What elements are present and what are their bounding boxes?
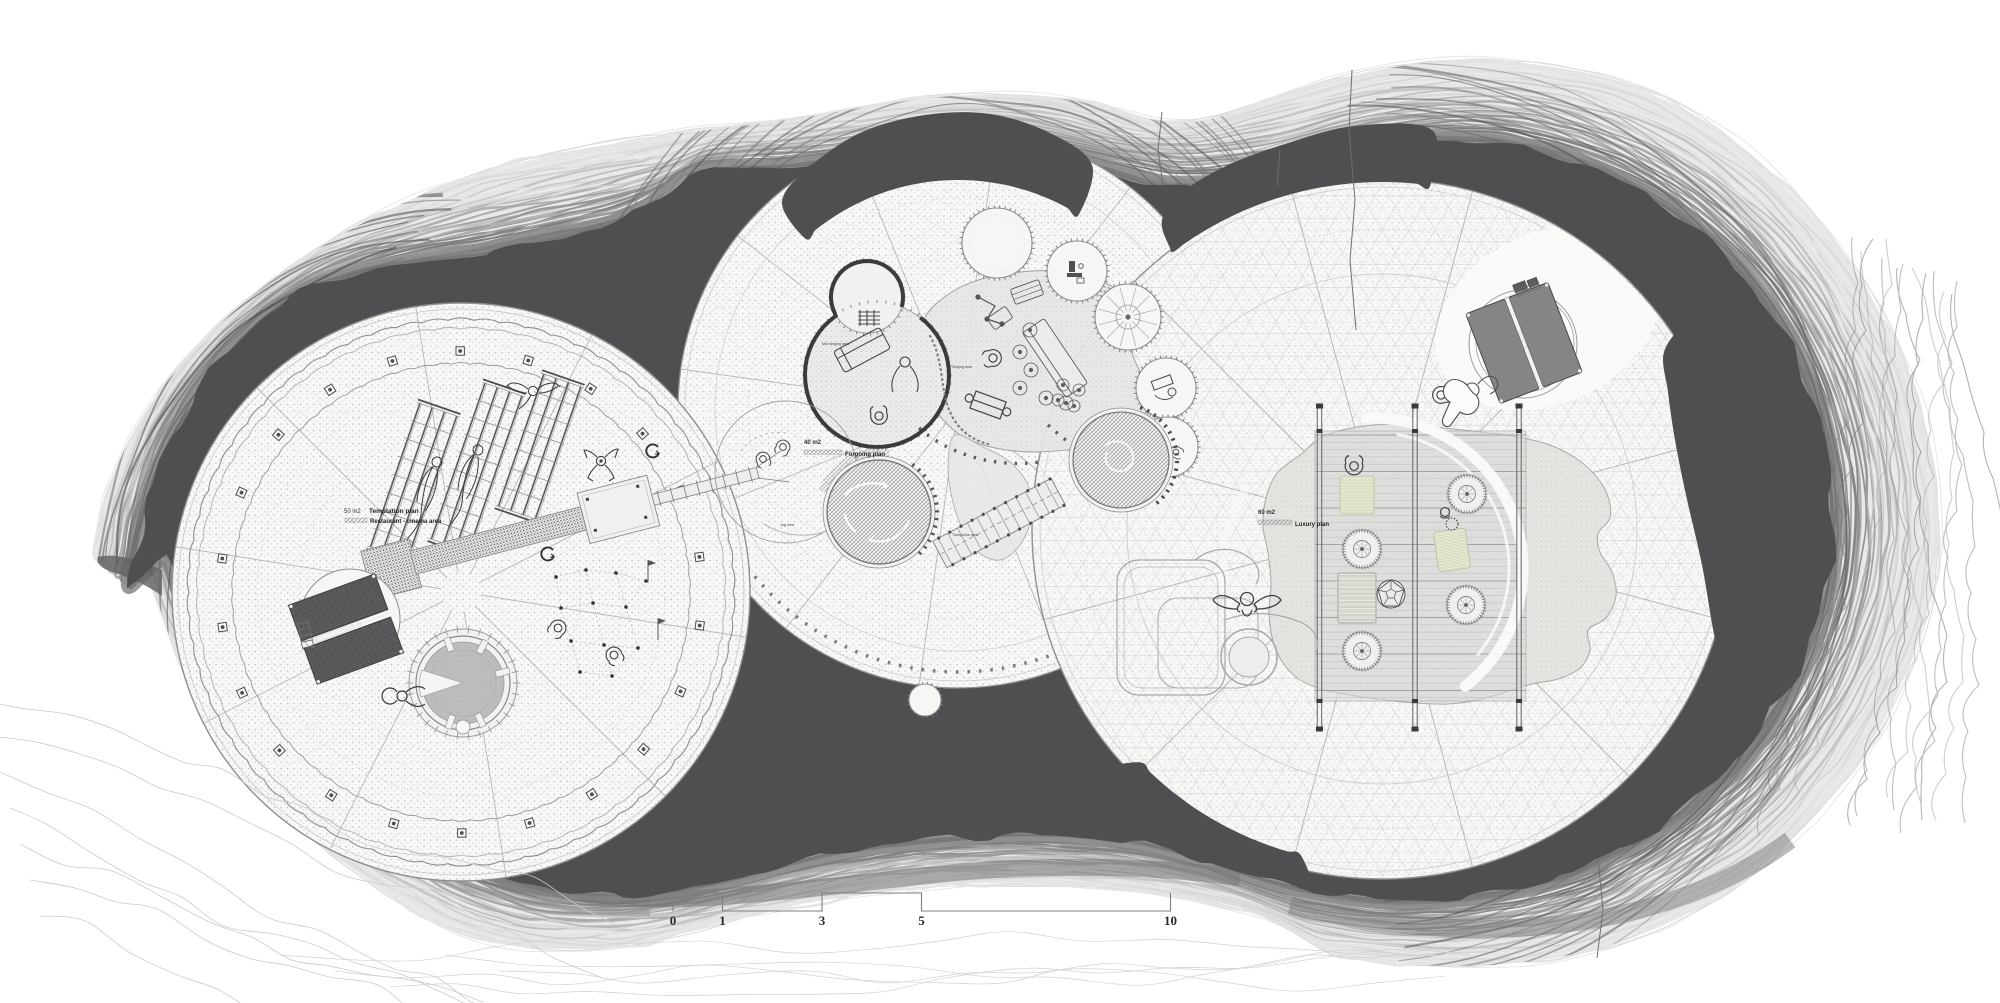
svg-text:Forgoing plan: Forgoing plan [845, 452, 885, 458]
svg-text:Jog area: Jog area [780, 523, 794, 527]
svg-text:Restaurant - cinema area: Restaurant - cinema area [370, 519, 442, 525]
svg-text:Luxury plan: Luxury plan [1295, 522, 1329, 528]
svg-text:1: 1 [719, 913, 726, 928]
svg-text:10: 10 [1164, 913, 1177, 928]
svg-text:Trampoline area: Trampoline area [952, 533, 978, 537]
svg-text:3: 3 [819, 913, 826, 928]
svg-text:Singing area: Singing area [952, 365, 972, 369]
svg-text:50 m2: 50 m2 [344, 509, 361, 515]
svg-text:5: 5 [918, 913, 925, 928]
svg-text:60 m2: 60 m2 [1258, 510, 1276, 516]
svg-text:0: 0 [670, 913, 677, 928]
svg-text:Mini singing area: Mini singing area [822, 342, 849, 346]
svg-text:40 m2: 40 m2 [804, 440, 822, 446]
svg-text:Temptation plan: Temptation plan [369, 508, 419, 515]
